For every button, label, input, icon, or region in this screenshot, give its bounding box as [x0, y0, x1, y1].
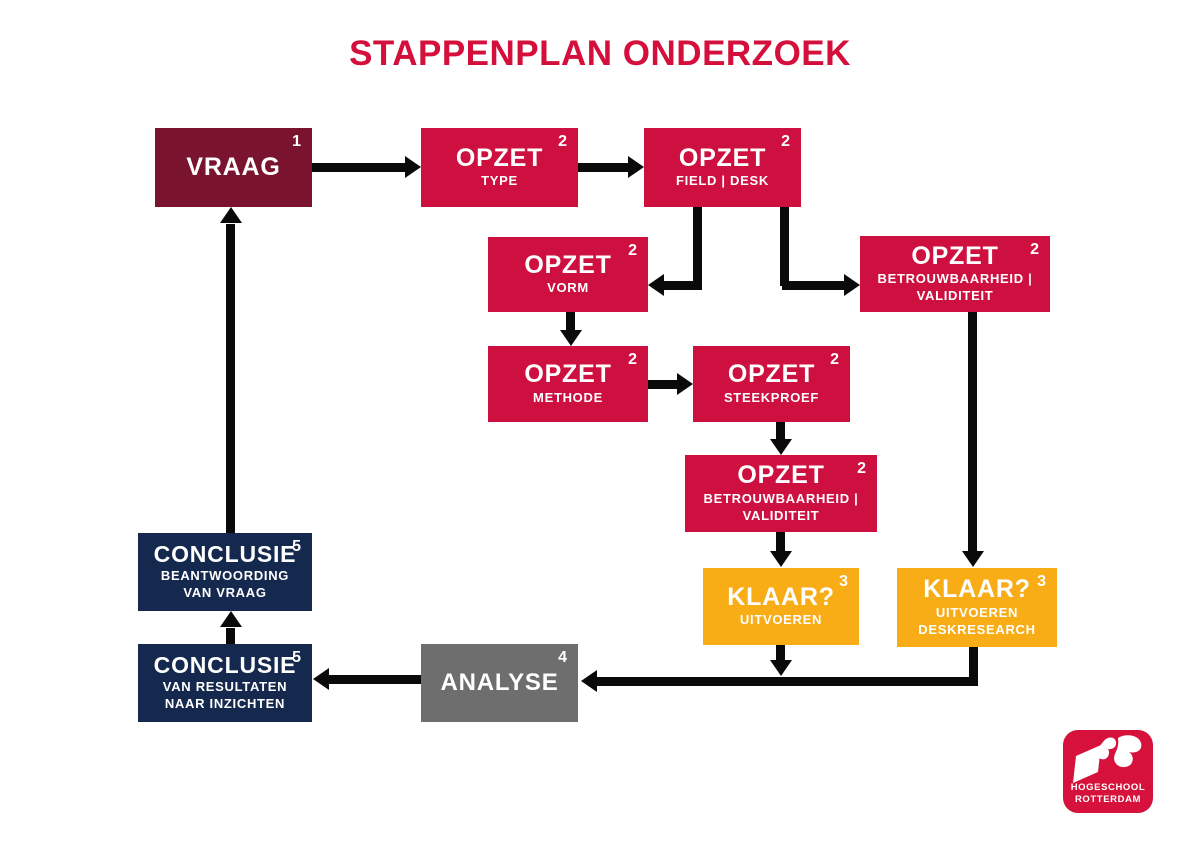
node-subtitle-line1: UITVOEREN	[936, 605, 1018, 622]
step-number: 2	[857, 460, 866, 478]
node-subtitle-line2: VALIDITEIT	[743, 508, 820, 525]
arrow-klaar-down-shaft	[776, 645, 785, 661]
arrow-betrouw-to-klaar-head	[770, 551, 792, 567]
arrow-fielddesk-to-betrouw-vertical	[780, 207, 789, 286]
node-subtitle-line1: VAN RESULTATEN	[163, 679, 287, 696]
step-number: 2	[628, 242, 637, 260]
hogeschool-rotterdam-logo: HOGESCHOOL ROTTERDAM	[1063, 730, 1153, 813]
arrow-deskresearch-to-analyse-horizontal	[596, 677, 978, 686]
node-conclusie-van-resultaten: 5 CONCLUSIE VAN RESULTATEN NAAR INZICHTE…	[138, 644, 312, 722]
arrow-analyse-to-conclusie-shaft	[328, 675, 421, 684]
step-number: 3	[839, 573, 848, 591]
node-opzet-betrouwbaarheid-validiteit-mid: 2 OPZET BETROUWBAARHEID | VALIDITEIT	[685, 455, 877, 532]
node-subtitle: METHODE	[533, 390, 603, 407]
node-subtitle-line2: NAAR INZICHTEN	[165, 696, 285, 713]
node-subtitle-line2: VALIDITEIT	[917, 288, 994, 305]
step-number: 2	[830, 351, 839, 369]
node-klaar-uitvoeren-deskresearch: 3 KLAAR? UITVOEREN DESKRESEARCH	[897, 568, 1057, 647]
node-title: CONCLUSIE	[154, 653, 297, 677]
step-number: 2	[1030, 241, 1039, 259]
step-number: 1	[292, 133, 301, 151]
node-subtitle-line1: BETROUWBAARHEID |	[704, 491, 859, 508]
arrow-betrouwright-to-klaar-head	[962, 551, 984, 567]
step-number: 5	[292, 538, 301, 556]
node-analyse: 4 ANALYSE	[421, 644, 578, 722]
logo-text-rotterdam: ROTTERDAM	[1063, 794, 1153, 805]
arrow-steekproef-to-betrouw-head	[770, 439, 792, 455]
arrow-betrouw-to-klaar-shaft	[776, 532, 785, 552]
node-subtitle: FIELD | DESK	[676, 173, 769, 190]
arrow-methode-to-steekproef-head	[677, 373, 693, 395]
node-title: OPZET	[456, 145, 543, 171]
node-opzet-field-desk: 2 OPZET FIELD | DESK	[644, 128, 801, 207]
arrow-vorm-to-methode-shaft	[566, 312, 575, 331]
node-subtitle: VORM	[547, 280, 589, 297]
node-subtitle: UITVOEREN	[740, 612, 822, 629]
arrow-deskresearch-to-analyse-head	[581, 670, 597, 692]
arrow-fielddesk-to-betrouw-horizontal	[782, 281, 844, 290]
node-title: OPZET	[679, 145, 766, 171]
arrow-type-to-fielddesk-shaft	[578, 163, 630, 172]
node-vraag: 1 VRAAG	[155, 128, 312, 207]
arrow-conclusie-to-vraag-head	[220, 207, 242, 223]
arrow-conclusie-up-head	[220, 611, 242, 627]
arrow-analyse-to-conclusie-head	[313, 668, 329, 690]
node-subtitle: TYPE	[481, 173, 518, 190]
node-title: OPZET	[524, 361, 611, 387]
node-conclusie-beantwoording: 5 CONCLUSIE BEANTWOORDING VAN VRAAG	[138, 533, 312, 611]
node-subtitle-line1: BETROUWBAARHEID |	[878, 271, 1033, 288]
arrow-fielddesk-to-vorm-head	[648, 274, 664, 296]
node-title: OPZET	[737, 462, 824, 488]
step-number: 2	[558, 133, 567, 151]
node-title: KLAAR?	[923, 576, 1031, 602]
node-opzet-type: 2 OPZET TYPE	[421, 128, 578, 207]
arrow-steekproef-to-betrouw-shaft	[776, 422, 785, 440]
arrow-conclusie-up-shaft	[226, 628, 235, 644]
step-number: 5	[292, 649, 301, 667]
arrow-fielddesk-to-vorm-vertical	[693, 207, 702, 286]
arrow-methode-to-steekproef-shaft	[648, 380, 678, 389]
node-title: OPZET	[728, 361, 815, 387]
node-title: CONCLUSIE	[154, 542, 297, 566]
node-subtitle-line1: BEANTWOORDING	[161, 568, 289, 585]
node-title: OPZET	[524, 252, 611, 278]
node-opzet-steekproef: 2 OPZET STEEKPROEF	[693, 346, 850, 422]
node-subtitle-line2: DESKRESEARCH	[918, 622, 1035, 639]
page-title: STAPPENPLAN ONDERZOEK	[0, 34, 1200, 74]
node-title: OPZET	[911, 243, 998, 269]
logo-text-hogeschool: HOGESCHOOL	[1063, 782, 1153, 793]
arrow-conclusie-to-vraag-shaft	[226, 224, 235, 533]
arrow-vraag-to-type-shaft	[312, 163, 406, 172]
step-number: 2	[628, 351, 637, 369]
arrow-fielddesk-to-vorm-horizontal	[663, 281, 702, 290]
node-subtitle: STEEKPROEF	[724, 390, 819, 407]
node-title: KLAAR?	[727, 584, 835, 610]
step-number: 4	[558, 649, 567, 667]
arrow-vorm-to-methode-head	[560, 330, 582, 346]
arrow-type-to-fielddesk-head	[628, 156, 644, 178]
node-subtitle-line2: VAN VRAAG	[183, 585, 266, 602]
arrow-betrouwright-to-klaar-shaft	[968, 312, 977, 552]
node-opzet-betrouwbaarheid-validiteit-right: 2 OPZET BETROUWBAARHEID | VALIDITEIT	[860, 236, 1050, 312]
node-title: ANALYSE	[440, 670, 558, 695]
node-opzet-vorm: 2 OPZET VORM	[488, 237, 648, 312]
node-title: VRAAG	[186, 154, 280, 180]
arrow-fielddesk-to-betrouw-head	[844, 274, 860, 296]
node-klaar-uitvoeren: 3 KLAAR? UITVOEREN	[703, 568, 859, 645]
arrow-klaar-down-head	[770, 660, 792, 676]
arrow-vraag-to-type-head	[405, 156, 421, 178]
step-number: 3	[1037, 573, 1046, 591]
step-number: 2	[781, 133, 790, 151]
node-opzet-methode: 2 OPZET METHODE	[488, 346, 648, 422]
flowchart-canvas: STAPPENPLAN ONDERZOEK 1 VRAAG 2 OPZET TY…	[0, 0, 1200, 848]
